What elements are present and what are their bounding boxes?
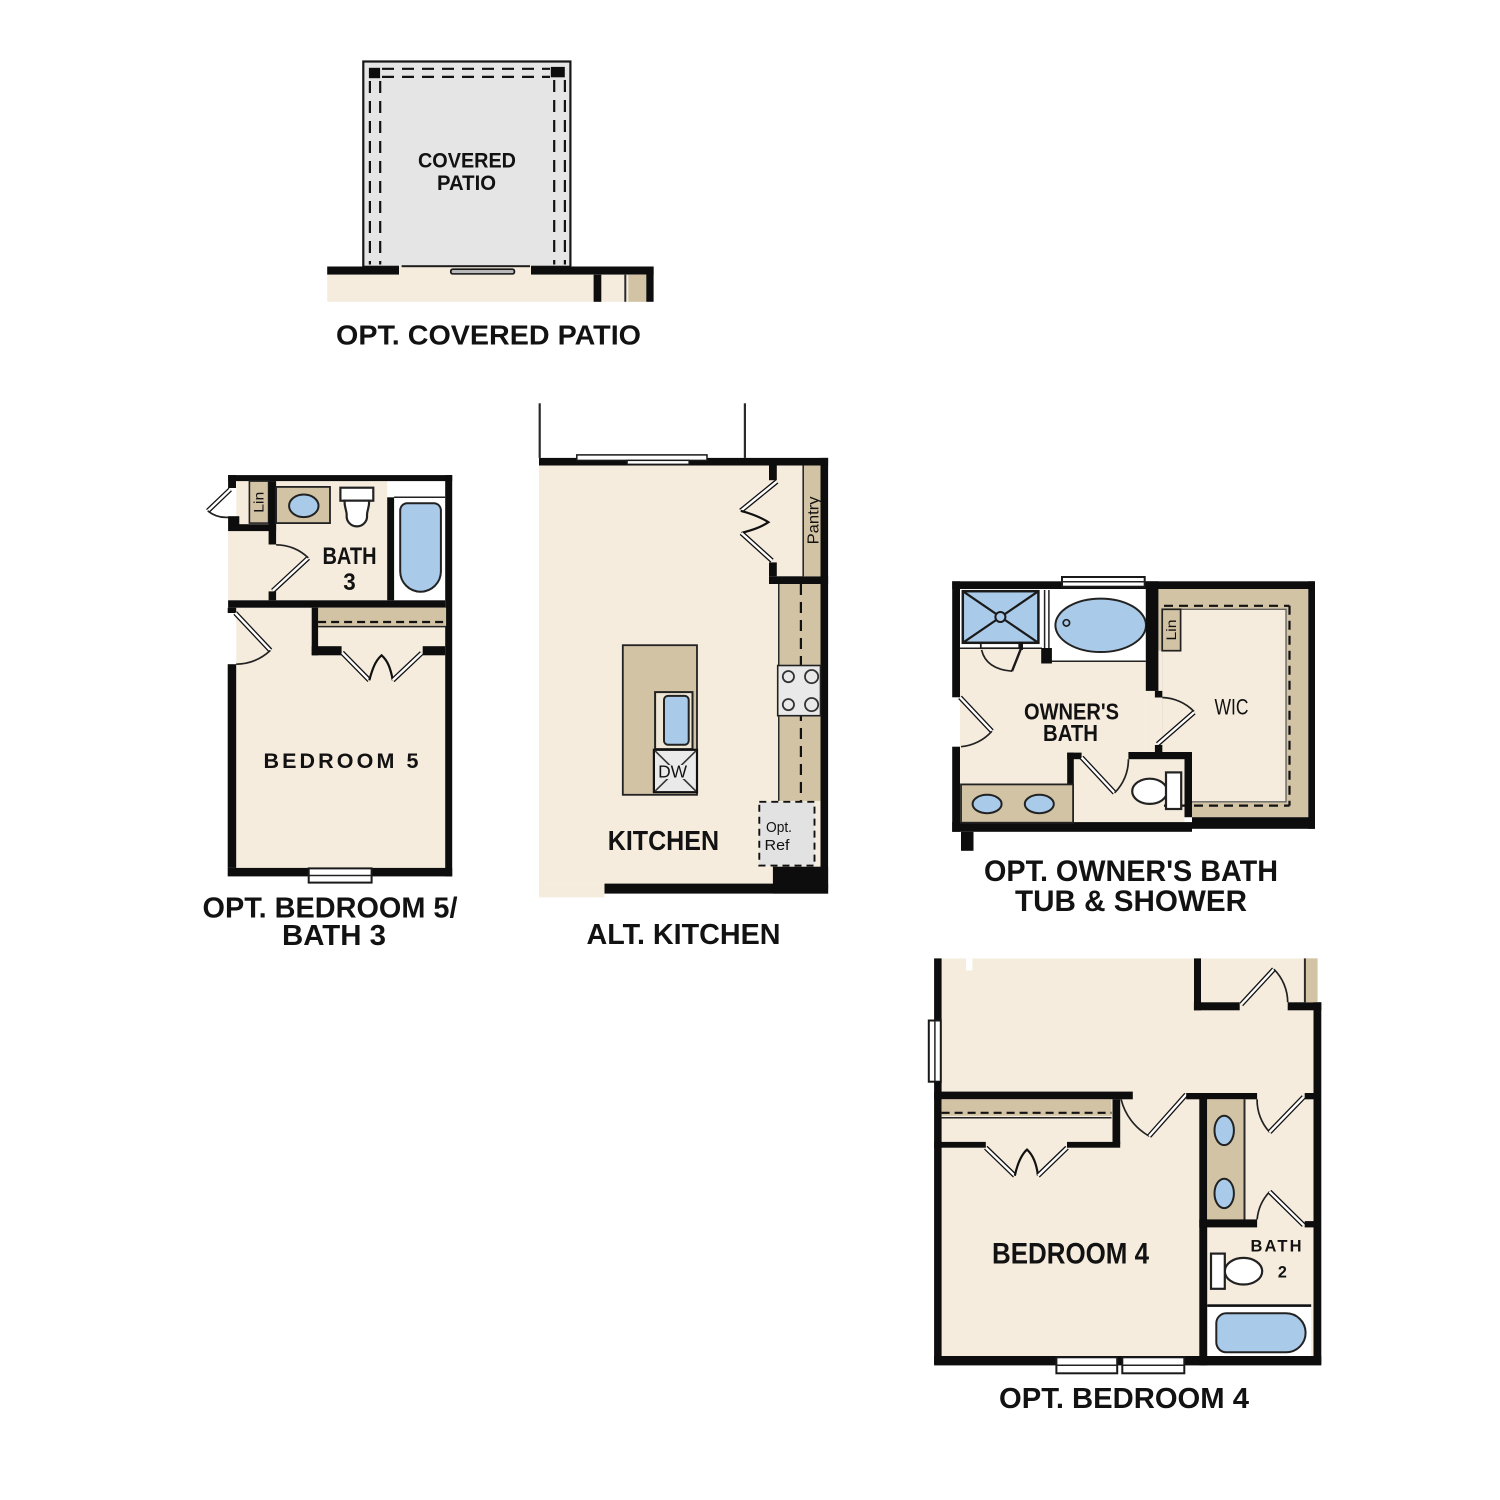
svg-text:3: 3: [343, 569, 356, 596]
svg-text:Opt.: Opt.: [766, 820, 792, 836]
svg-text:Lin: Lin: [1164, 620, 1179, 641]
svg-text:BATH: BATH: [1043, 720, 1098, 746]
svg-text:Pantry: Pantry: [805, 496, 822, 544]
svg-text:2: 2: [1278, 1263, 1287, 1282]
svg-text:WIC: WIC: [1215, 695, 1249, 720]
svg-text:BATH: BATH: [323, 543, 377, 570]
svg-text:PATIO: PATIO: [437, 172, 496, 195]
svg-text:OPT. COVERED PATIO: OPT. COVERED PATIO: [336, 320, 641, 351]
svg-text:COVERED: COVERED: [418, 150, 516, 173]
svg-text:Ref: Ref: [765, 838, 791, 854]
svg-text:Lin: Lin: [251, 492, 266, 513]
svg-text:KITCHEN: KITCHEN: [608, 825, 719, 856]
svg-text:OPT. BEDROOM 4: OPT. BEDROOM 4: [999, 1383, 1249, 1415]
svg-text:BEDROOM 4: BEDROOM 4: [992, 1238, 1149, 1271]
svg-text:TUB & SHOWER: TUB & SHOWER: [1015, 885, 1247, 918]
svg-text:OPT. OWNER'S BATH: OPT. OWNER'S BATH: [984, 855, 1278, 888]
svg-text:DW: DW: [658, 762, 687, 782]
svg-text:BATH 3: BATH 3: [282, 920, 386, 952]
svg-text:ALT. KITCHEN: ALT. KITCHEN: [587, 919, 781, 951]
